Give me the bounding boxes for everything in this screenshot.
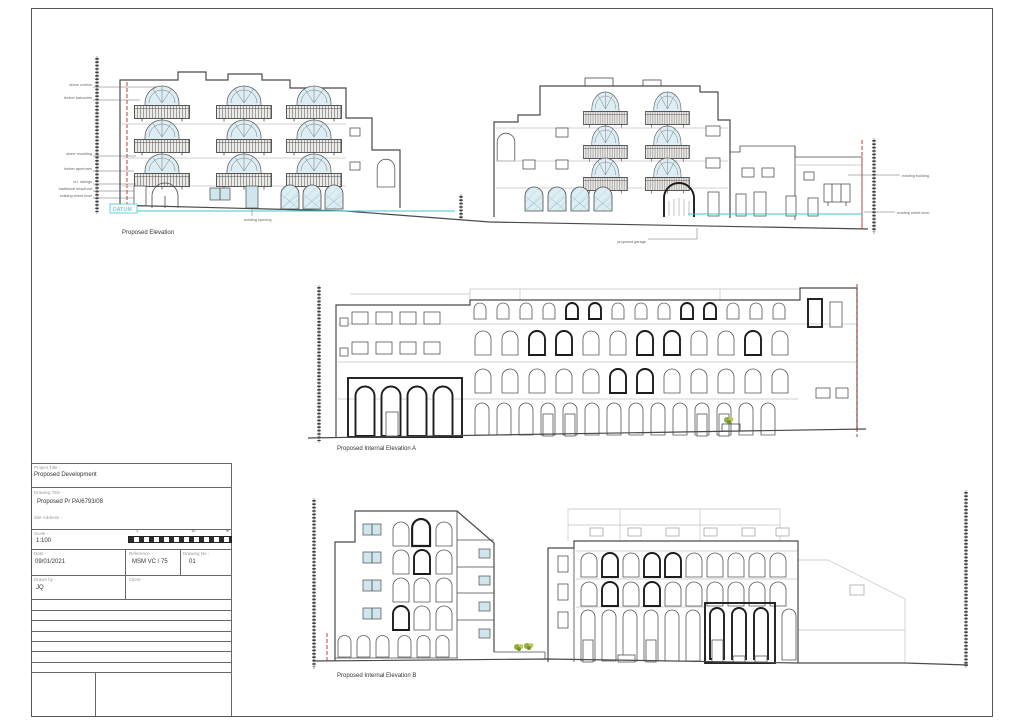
- ground-line-b: [313, 659, 968, 665]
- client-label: Client -: [129, 577, 143, 582]
- reference-value: MSM VC / 75: [132, 559, 168, 565]
- arcade-b-right: [581, 610, 700, 662]
- closed-timber-balcony: [824, 184, 850, 206]
- internal-elevation-b-left: [314, 498, 545, 669]
- project-title-value: Proposed Development: [34, 472, 97, 478]
- left-wing-windows: [340, 312, 440, 356]
- drawn-by-value: JQ: [36, 585, 44, 591]
- mid-arch-row: [475, 331, 788, 355]
- annotation-left-5: w.i. railings: [73, 180, 92, 184]
- annotation-left-3: stone moulding: [66, 152, 92, 156]
- scale-label: Scale -: [34, 531, 48, 536]
- arch-row-upper: [581, 553, 786, 577]
- drawing-title-label: Drawing Title -: [34, 490, 63, 495]
- scale-bar-num-1: 1: [136, 528, 138, 533]
- lower-arch-row: [475, 369, 788, 393]
- drawing-no-value: 01: [189, 559, 196, 565]
- drawing-no-label: Drawing No -: [183, 551, 209, 556]
- scale-bar: [128, 536, 232, 543]
- timber-balconies: [135, 86, 342, 189]
- date-label: Date -: [34, 551, 46, 556]
- internal-elevation-a-title: Proposed Internal Elevation A: [337, 446, 416, 452]
- scale-bar-num-3: m: [226, 528, 229, 533]
- annotation-below-left: existing opening: [244, 218, 271, 222]
- drawn-by-label: Drawn by -: [34, 577, 56, 582]
- annotation-left-1: stone cornice: [69, 83, 92, 87]
- annotation-left-7: existing street level: [60, 194, 92, 198]
- window-pairs: [363, 524, 381, 619]
- annotation-left-2: timber balconies: [64, 96, 92, 100]
- top-arch-row: [474, 303, 785, 319]
- project-title-label: Project Title -: [34, 465, 60, 470]
- annotation-below-right: proposed garage: [617, 240, 646, 244]
- portico-arches: [348, 378, 462, 437]
- drawing-title-value: Proposed Pr PA/6793/08: [37, 499, 103, 505]
- portico-b: [705, 603, 775, 663]
- internal-elevation-a: Proposed Internal Elevation A: [308, 284, 866, 452]
- internal-elevation-b-title: Proposed Internal Elevation B: [337, 673, 416, 679]
- shrub-2: [524, 643, 533, 650]
- date-value: 09/01/2021: [35, 559, 65, 565]
- annotation-left-6: traditional shopfront: [59, 187, 93, 191]
- title-block: Project Title - Proposed Development Dra…: [31, 463, 232, 716]
- reference-label: Reference -: [129, 551, 153, 556]
- drawing-sheet: stone cornice timber balconies stone mou…: [0, 0, 1024, 724]
- proposed-elevation-left-building: stone cornice timber balconies stone mou…: [59, 56, 400, 222]
- annotation-right-1: existing building: [902, 174, 929, 178]
- timber-balconies-right: [583, 92, 689, 193]
- shrub-1: [514, 644, 523, 651]
- ground-arcade-b: [335, 636, 458, 659]
- proposed-elevation-title: Proposed Elevation: [122, 230, 174, 236]
- proposed-elevation-right-building: existing building existing street level …: [461, 78, 929, 244]
- scale-bar-num-2: 10: [191, 528, 195, 533]
- site-address-label: Site Address -: [34, 515, 62, 520]
- arch-grid: [393, 519, 452, 630]
- datum-label: DATUM: [113, 207, 132, 213]
- annotation-left-4: timber apertures: [64, 167, 92, 171]
- annotation-right-2: existing street level: [897, 211, 929, 215]
- scale-value: 1:100: [36, 538, 51, 544]
